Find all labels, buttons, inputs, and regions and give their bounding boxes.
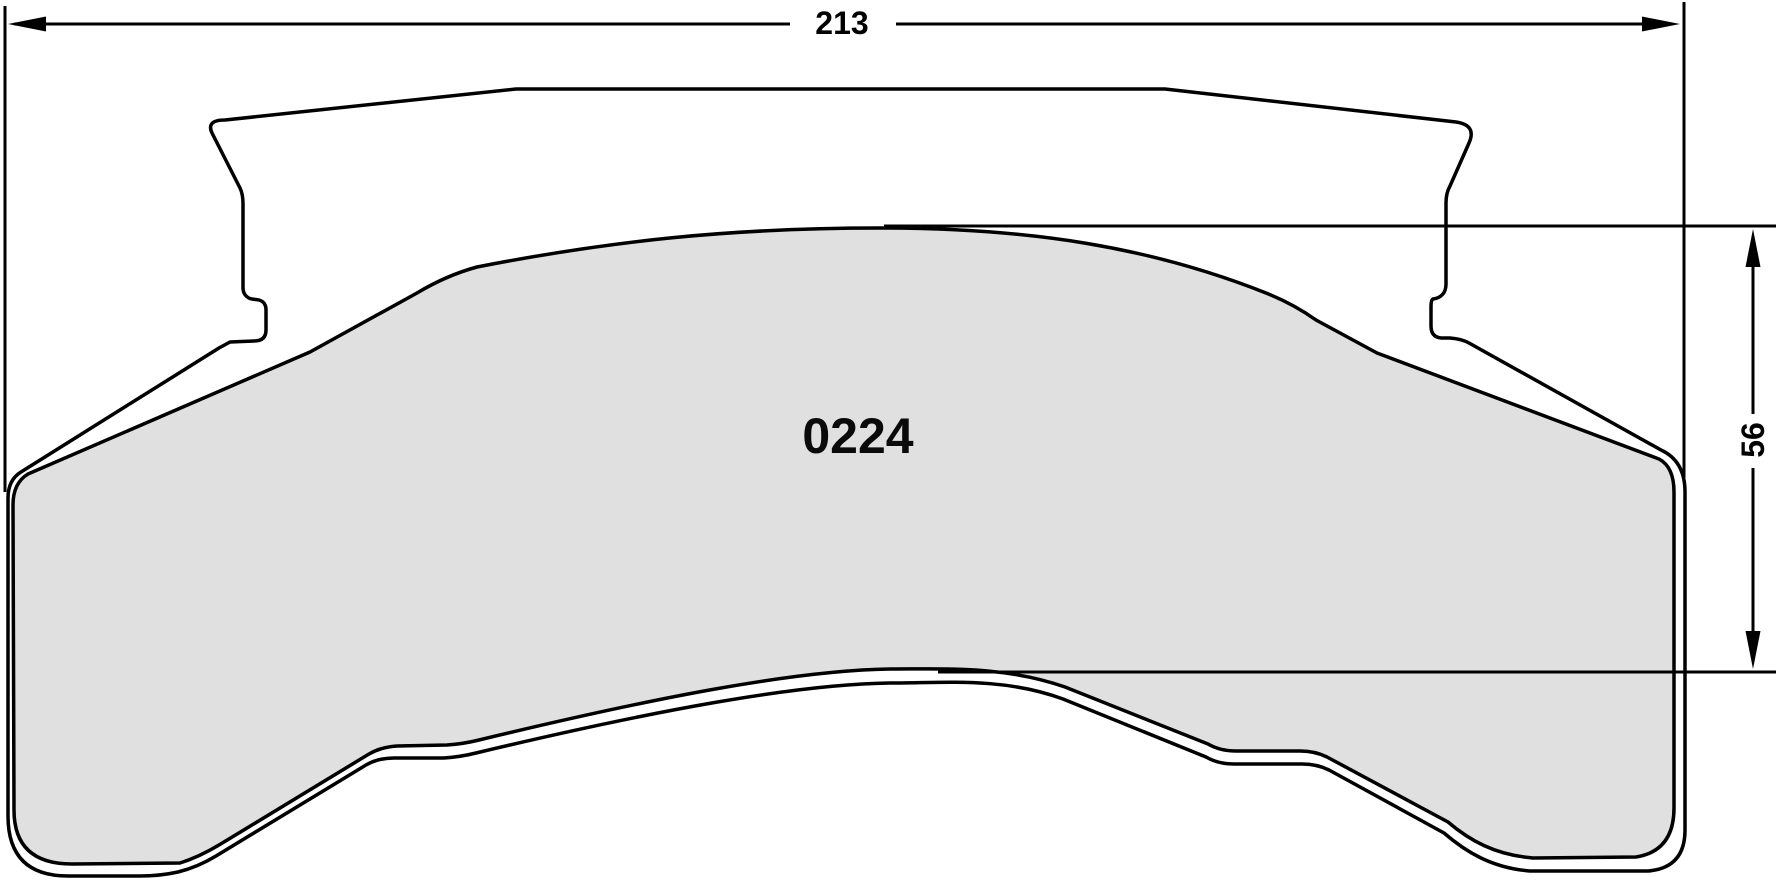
dim-height-arrow-down (1746, 631, 1761, 669)
dim-height-arrow-up (1746, 229, 1761, 267)
drawing-canvas: 213 56 0224 (0, 0, 1778, 883)
height-dimension-label: 56 (1735, 422, 1771, 458)
part-number-label: 0224 (802, 408, 913, 464)
brake-pad-technical-drawing: 213 56 0224 (0, 0, 1778, 883)
dim-width-arrow-right (1642, 17, 1680, 32)
width-dimension-label: 213 (815, 5, 868, 41)
dim-width-arrow-left (8, 17, 46, 32)
